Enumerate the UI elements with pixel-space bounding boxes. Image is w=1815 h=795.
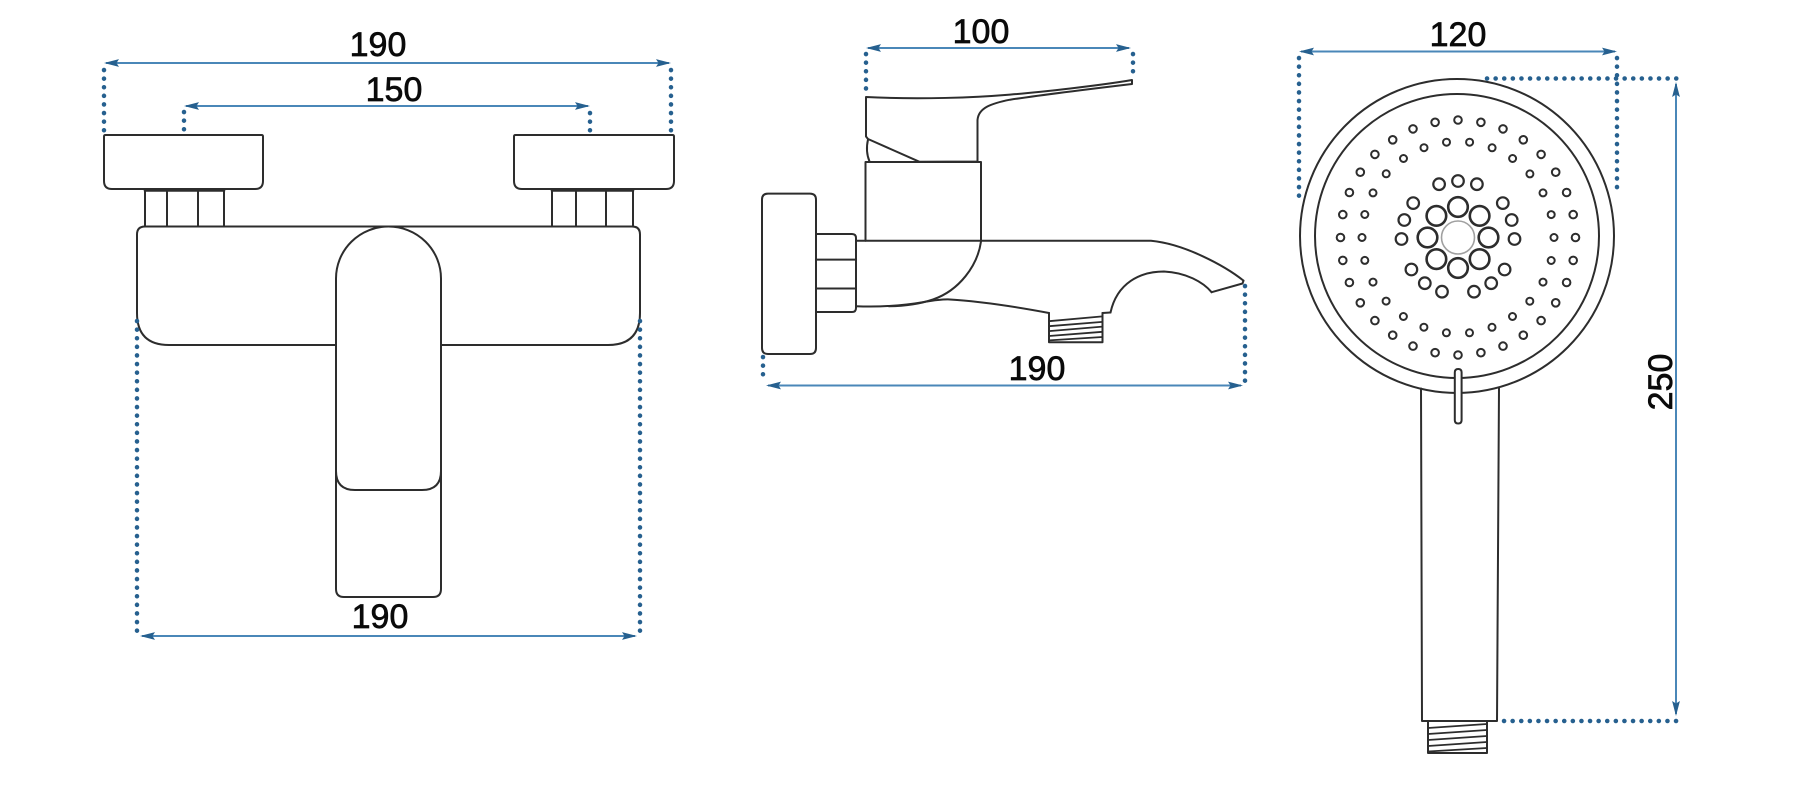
svg-text:120: 120 <box>1430 16 1487 54</box>
svg-text:190: 190 <box>350 26 407 64</box>
svg-text:190: 190 <box>1009 350 1066 388</box>
svg-text:150: 150 <box>366 71 423 109</box>
svg-text:100: 100 <box>953 13 1010 51</box>
svg-text:250: 250 <box>1642 354 1680 411</box>
svg-text:190: 190 <box>352 598 409 636</box>
